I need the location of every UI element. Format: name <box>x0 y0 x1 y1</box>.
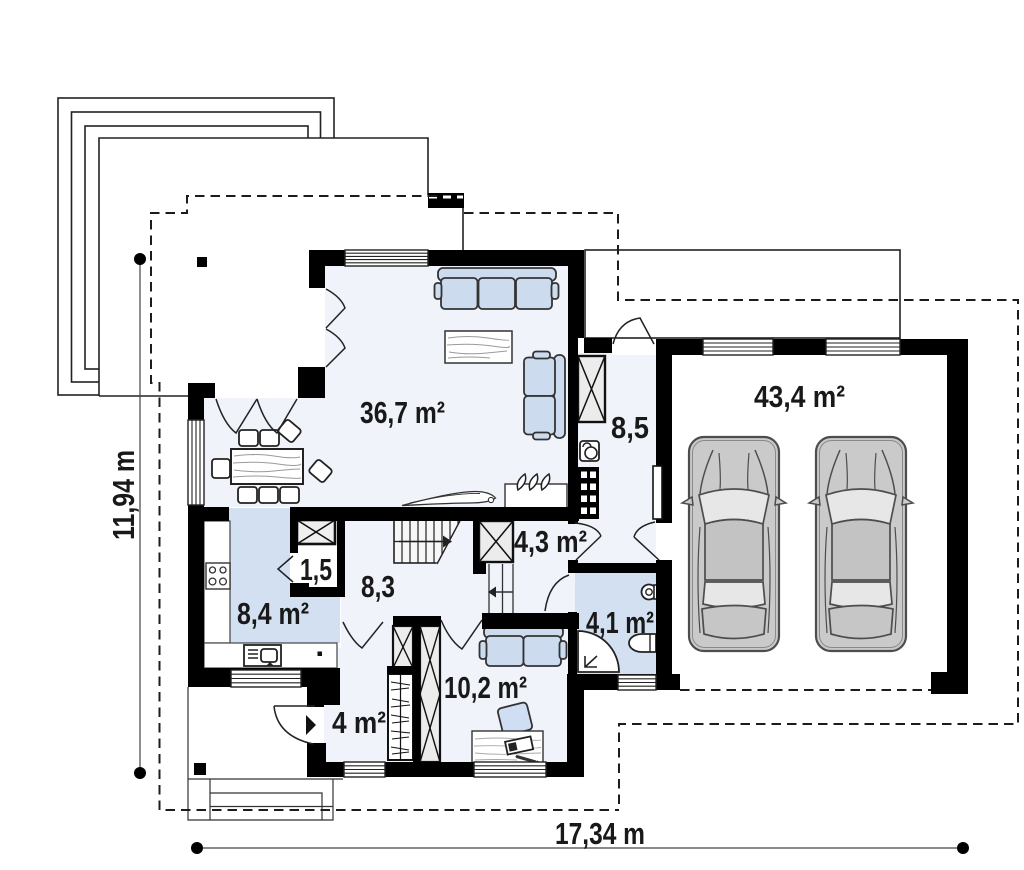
svg-text:4 m²: 4 m² <box>332 705 386 740</box>
svg-text:1,5: 1,5 <box>300 552 332 587</box>
svg-text:8,4 m²: 8,4 m² <box>237 596 309 631</box>
svg-text:17,34 m: 17,34 m <box>555 816 645 851</box>
svg-text:8,5: 8,5 <box>611 410 649 445</box>
svg-text:43,4 m²: 43,4 m² <box>754 379 845 414</box>
svg-text:4,3 m²: 4,3 m² <box>514 524 587 559</box>
svg-text:4,1 m²: 4,1 m² <box>586 605 654 640</box>
svg-text:8,3: 8,3 <box>361 569 395 604</box>
svg-text:11,94 m: 11,94 m <box>106 450 141 540</box>
svg-text:10,2 m²: 10,2 m² <box>444 670 527 705</box>
svg-text:36,7 m²: 36,7 m² <box>360 395 445 430</box>
